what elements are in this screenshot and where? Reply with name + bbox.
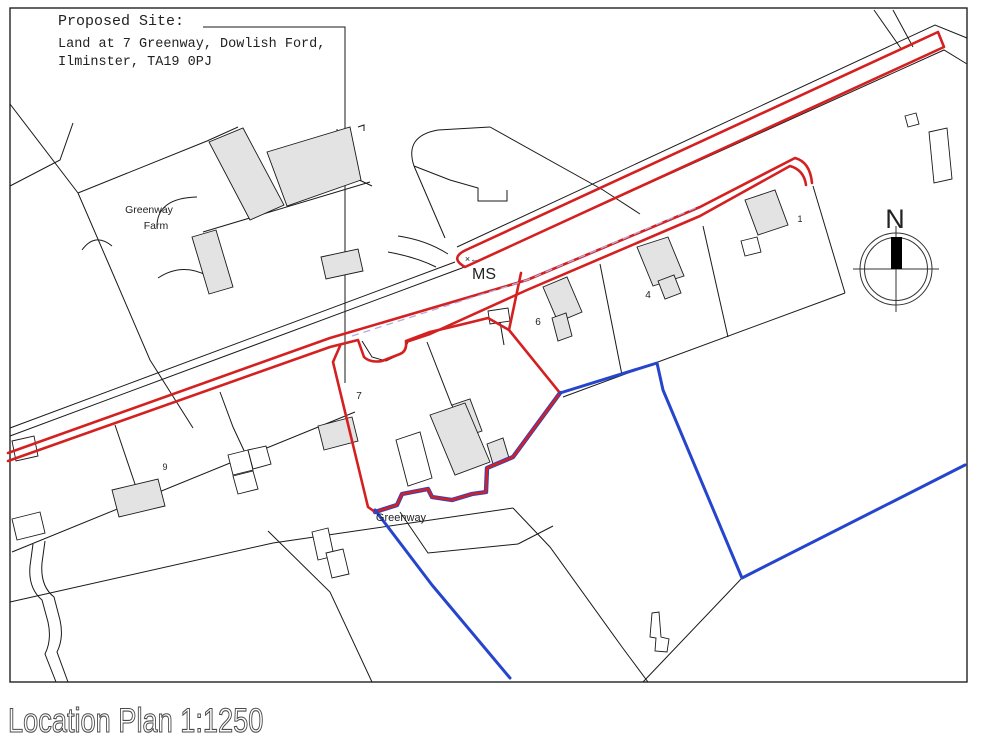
farm-name-line1: Greenway — [125, 204, 174, 216]
compass: N — [853, 204, 939, 312]
blue-boundary-south — [375, 510, 510, 678]
title-line2: Land at 7 Greenway, Dowlish Ford, — [58, 37, 325, 52]
parcel-lines — [10, 10, 967, 682]
site-outbuilding — [396, 432, 432, 486]
red-corridor-south-inner — [8, 158, 812, 453]
plot-number-4: 4 — [645, 290, 651, 301]
north-needle-icon — [891, 237, 902, 269]
plot-number-6: 6 — [535, 317, 541, 328]
house-9 — [112, 479, 165, 517]
plot1-outbuilding — [741, 237, 761, 256]
title-block: Proposed Site: Land at 7 Greenway, Dowli… — [58, 13, 325, 70]
red-connector — [509, 273, 521, 330]
location-plan-page: Greenway Farm MS ×← 7 6 4 1 9 Greenway N… — [0, 0, 989, 747]
site-house — [430, 403, 490, 475]
small-structure — [905, 113, 919, 127]
plan-caption: Location Plan 1:1250 — [8, 701, 263, 740]
title-line3: Ilminster, TA19 0PJ — [58, 55, 212, 70]
farm-building — [192, 230, 233, 294]
plot-number-9: 9 — [162, 462, 167, 472]
narrow-structure — [929, 128, 952, 183]
roadside-structure — [488, 308, 510, 324]
benchmark-marker: ×← — [465, 254, 479, 264]
farm-building — [209, 128, 284, 220]
edge-structure — [12, 512, 45, 540]
road-marker-ms: MS — [472, 266, 496, 283]
blue-boundary-east — [560, 363, 965, 578]
map-frame — [10, 8, 967, 682]
plot-number-7: 7 — [356, 391, 362, 402]
caption-group: Location Plan 1:1250 — [8, 701, 263, 740]
plot-number-1: 1 — [797, 214, 802, 224]
title-line1: Proposed Site: — [58, 13, 184, 30]
farm-name-line2: Farm — [144, 220, 169, 232]
location-plan-map: Greenway Farm MS ×← 7 6 4 1 9 Greenway N… — [0, 0, 989, 747]
post-structure — [650, 612, 669, 652]
street-name-greenway: Greenway — [376, 512, 427, 524]
farm-outbuilding — [321, 249, 363, 279]
house-1 — [745, 190, 788, 235]
outbuilding — [326, 549, 349, 578]
farm-building — [267, 127, 361, 206]
house-4 — [637, 237, 684, 286]
north-label: N — [885, 204, 905, 234]
